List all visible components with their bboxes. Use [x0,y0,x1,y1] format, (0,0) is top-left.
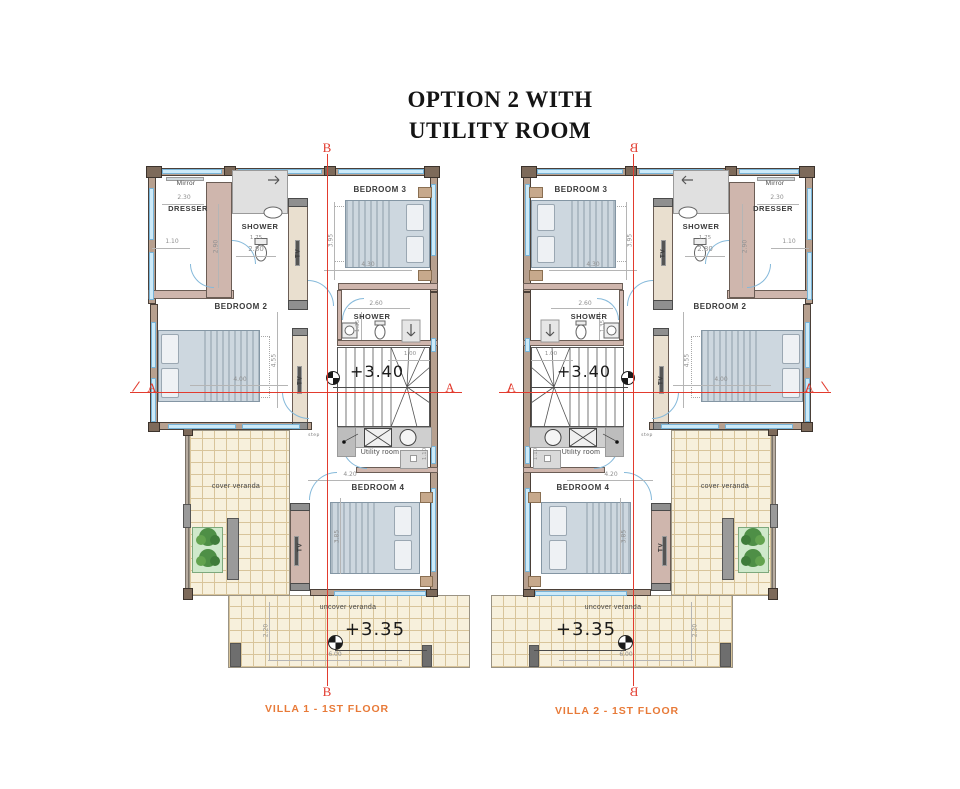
dimension-line [549,270,637,271]
dimension-line [324,270,412,271]
washer-sink-icons [535,428,597,447]
utility-unit-dot [410,455,417,462]
dimension-line [771,248,809,249]
section-line-a [499,392,831,393]
window [242,424,300,429]
elevation-line [333,387,430,388]
window [334,591,426,596]
label-cover-veranda: cover veranda [196,483,276,490]
wall-cap [625,166,637,176]
dim-label: 4.20 [310,471,390,478]
pillar [529,645,539,667]
window [537,169,623,174]
pillow [406,204,424,231]
dim-label: 1.10 [422,429,428,479]
dim-label: 6.00 [586,651,666,658]
floor-plan: Mirror 2.30 DRESSER 1.10 SHOWER 1.75 2.8… [488,140,833,700]
label-tv: TV [297,356,304,406]
nightstand [420,576,433,587]
label-shower-mid: SHOWER [332,312,412,321]
drawing-title: OPTION 2 WITH UTILITY ROOM [40,84,960,146]
nightstand [418,187,432,198]
elevation-line [531,387,628,388]
washer-sink-icons [364,428,426,447]
wall-cap [653,300,673,310]
window [661,424,719,429]
pillow [537,236,555,263]
dim-label: 1.35 [600,301,606,351]
dimension-line [236,256,276,257]
plant-icon [739,526,767,572]
wall-cap [651,583,671,591]
dimension-line [685,256,725,257]
pillow [549,506,567,536]
wall-cap [324,166,336,176]
dim-label: 4.00 [681,376,761,383]
label-utility: Utility room [340,449,420,456]
pillow [161,368,179,398]
dim-label: 1.00 [370,351,450,357]
label-uncover-veranda: uncover veranda [573,604,653,611]
dimension-line [388,360,430,361]
dim-label: 4.55 [271,336,278,386]
step-note-label: step [274,433,354,438]
label-mirror: Mirror [146,180,226,187]
dim-label: 1.10 [533,429,539,479]
drain-arrow-icon [677,174,695,186]
label-shower-mid: SHOWER [549,312,629,321]
dim-label: 2.90 [213,222,220,272]
pillar [422,645,432,667]
dim-label: 1.10 [132,238,212,245]
label-tv: TV [297,523,304,573]
window [807,252,812,300]
wall-segment [523,283,623,290]
section-tick [821,381,829,391]
dim-label: 2.60 [545,300,625,307]
label-bedroom4: BEDROOM 4 [543,483,623,492]
dimension-line [559,660,693,661]
dim-label: 1.75 [665,235,745,241]
section-marker-b-bottom: B [317,684,337,700]
stair-level-label: +3.40 [337,362,417,381]
dim-label: 2.80 [216,245,296,253]
dim-label: 4.20 [571,471,651,478]
utility-unit-dot [544,455,551,462]
veranda-level-label: +3.35 [335,619,415,640]
dim-label: 6.00 [295,651,375,658]
dim-label: 2.30 [737,194,817,201]
window [168,424,236,429]
bathroom-fixtures [529,318,621,344]
label-tv: TV [660,229,667,279]
wall-cap [426,589,438,597]
villa-2-caption: VILLA 2 - 1ST FLOOR [507,705,727,717]
window [162,169,222,174]
dimension-line [152,248,190,249]
label-bedroom4: BEDROOM 4 [338,483,418,492]
window [535,591,627,596]
label-utility: Utility room [541,449,621,456]
villa-1-plan: Mirror 2.30 DRESSER 1.10 SHOWER 1.75 2.8… [128,140,473,700]
wall-cap [799,166,815,178]
wall-segment [338,283,438,290]
label-tv: TV [658,356,665,406]
pillow [782,368,800,398]
door-arc [190,264,214,288]
dim-label: 4.30 [553,261,633,268]
label-uncover-veranda: uncover veranda [308,604,388,611]
dim-label: 1.10 [749,238,829,245]
section-marker-a-left: A [142,380,162,396]
label-dresser: DRESSER [733,204,813,213]
window [739,169,799,174]
label-bedroom2: BEDROOM 2 [201,302,281,311]
label-tv: TV [658,523,665,573]
dim-label: 2.20 [263,606,270,656]
dim-label: 1.35 [355,301,361,351]
stair-level-label: +3.40 [544,362,624,381]
pillow [406,236,424,263]
label-shower-top: SHOWER [220,222,300,231]
label-tv: TV [295,229,302,279]
veranda-level-label: +3.35 [546,619,626,640]
wall-cap [801,422,813,432]
pillow [161,334,179,364]
dim-label: 2.20 [692,606,699,656]
pillar [770,504,778,528]
pillar [227,518,239,580]
step-note-label: step [607,433,687,438]
window [805,322,810,368]
dimension-line [567,480,653,481]
window [149,252,154,300]
wall-cap [521,166,537,178]
section-marker-a-right: A [440,380,460,396]
dimension-line [531,360,573,361]
bathroom-fixtures [340,318,432,344]
door-arc [282,392,309,419]
window [338,169,424,174]
pillar [720,643,731,667]
plant-icon [194,526,222,572]
wall-cap [653,198,673,207]
window [525,446,530,464]
wall-cap [653,328,669,336]
nightstand [420,492,433,503]
dimension-line [268,660,402,661]
nightstand [528,576,541,587]
villa-1-caption: VILLA 1 - 1ST FLOOR [217,703,437,715]
dim-label: 4.00 [200,376,280,383]
wall-cap [651,503,671,511]
drawing-canvas: OPTION 2 WITH UTILITY ROOM [0,0,960,789]
window [725,424,793,429]
drain-arrow-icon [266,174,284,186]
label-shower-top: SHOWER [661,222,741,231]
sink-icon [677,206,699,219]
dim-label: 3.85 [621,512,628,562]
wall-cap [290,583,310,591]
window [431,446,436,464]
dim-label: 2.60 [336,300,416,307]
nightstand [528,492,541,503]
dim-label: 3.95 [627,216,634,266]
wall-cap [183,588,193,600]
dim-label: 4.30 [328,261,408,268]
wall-cap [290,503,310,511]
title-line-1: OPTION 2 WITH [40,84,960,115]
section-tick [132,381,140,391]
wall-cap [288,198,308,207]
pillow [549,540,567,570]
pillar [722,518,734,580]
dim-label: 2.30 [144,194,224,201]
nightstand [418,270,432,281]
dimension-line [308,480,394,481]
floor-plan: Mirror 2.30 DRESSER 1.10 SHOWER 1.75 2.8… [128,140,473,700]
label-bedroom3: BEDROOM 3 [541,185,621,194]
pillow [537,204,555,231]
dim-label: 1.75 [216,235,296,241]
pillow [782,334,800,364]
label-dresser: DRESSER [148,204,228,213]
section-marker-a-right: A [501,380,521,396]
section-marker-b-top: B [624,140,644,156]
door-arc [652,392,679,419]
pillow [394,506,412,536]
pillow [394,540,412,570]
section-marker-a-left: A [799,380,819,396]
label-mirror: Mirror [735,180,815,187]
villa-2-plan: Mirror 2.30 DRESSER 1.10 SHOWER 1.75 2.8… [488,140,833,700]
dim-label: 1.00 [511,351,591,357]
dim-label: 2.80 [665,245,745,253]
wall-cap [424,166,440,178]
nightstand [529,270,543,281]
label-cover-veranda: cover veranda [685,483,765,490]
pillar [230,643,241,667]
dim-label: 2.90 [742,222,749,272]
dim-label: 3.85 [334,512,341,562]
wall-cap [523,589,535,597]
pillar [183,504,191,528]
dim-label: 4.55 [684,336,691,386]
wall-cap [292,328,308,336]
wall-cap [768,588,778,600]
wall-cap [288,300,308,310]
door-arc [747,264,771,288]
door-arc [627,280,653,306]
wall-cap [146,166,162,178]
section-marker-b-top: B [317,140,337,156]
door-arc [308,280,334,306]
window [151,322,156,368]
label-bedroom3: BEDROOM 3 [340,185,420,194]
wall-cap [148,422,160,432]
section-marker-b-bottom: B [624,684,644,700]
label-bedroom2: BEDROOM 2 [680,302,760,311]
dim-label: 3.95 [328,216,335,266]
sink-icon [262,206,284,219]
